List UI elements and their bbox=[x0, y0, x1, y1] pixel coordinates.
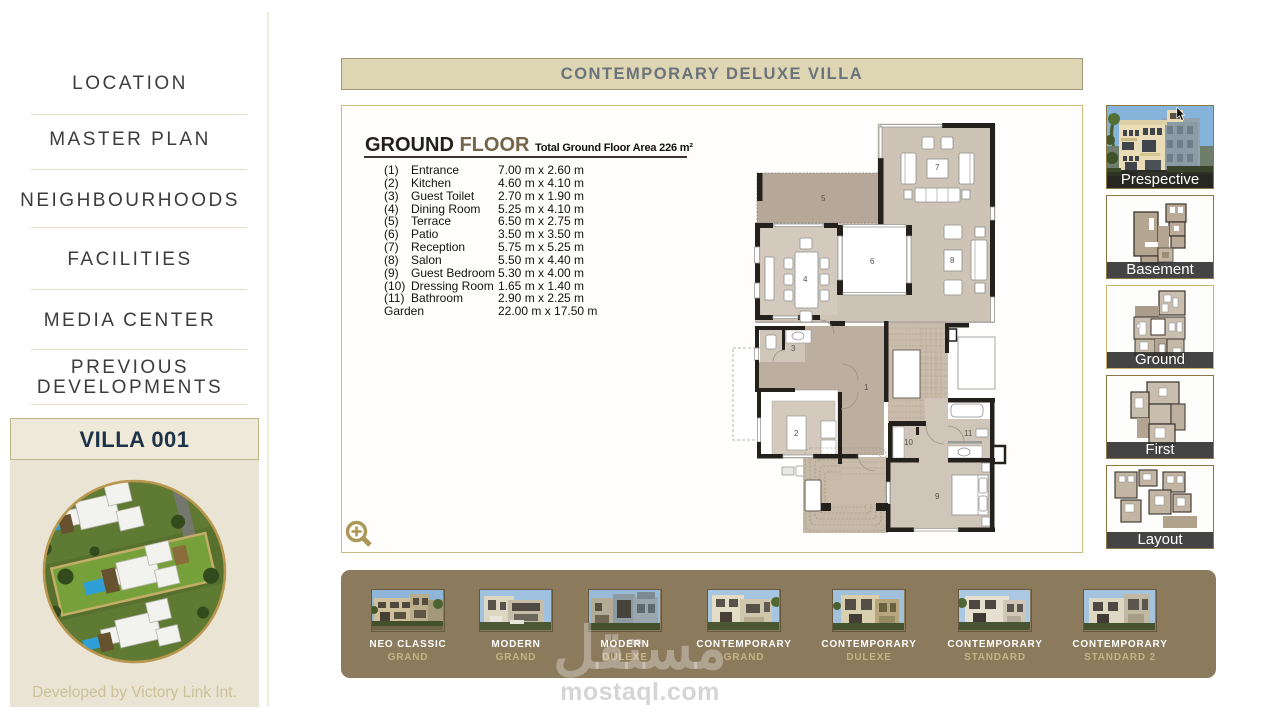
svg-text:8: 8 bbox=[950, 256, 955, 265]
svg-text:5: 5 bbox=[821, 194, 826, 203]
svg-text:6: 6 bbox=[870, 257, 875, 266]
svg-text:7: 7 bbox=[935, 163, 940, 172]
svg-text:9: 9 bbox=[935, 492, 940, 501]
svg-text:4: 4 bbox=[803, 275, 808, 284]
svg-text:3: 3 bbox=[791, 344, 796, 353]
svg-text:2: 2 bbox=[794, 429, 799, 438]
svg-text:11: 11 bbox=[964, 429, 973, 438]
svg-text:10: 10 bbox=[904, 438, 913, 447]
svg-text:1: 1 bbox=[864, 383, 869, 392]
